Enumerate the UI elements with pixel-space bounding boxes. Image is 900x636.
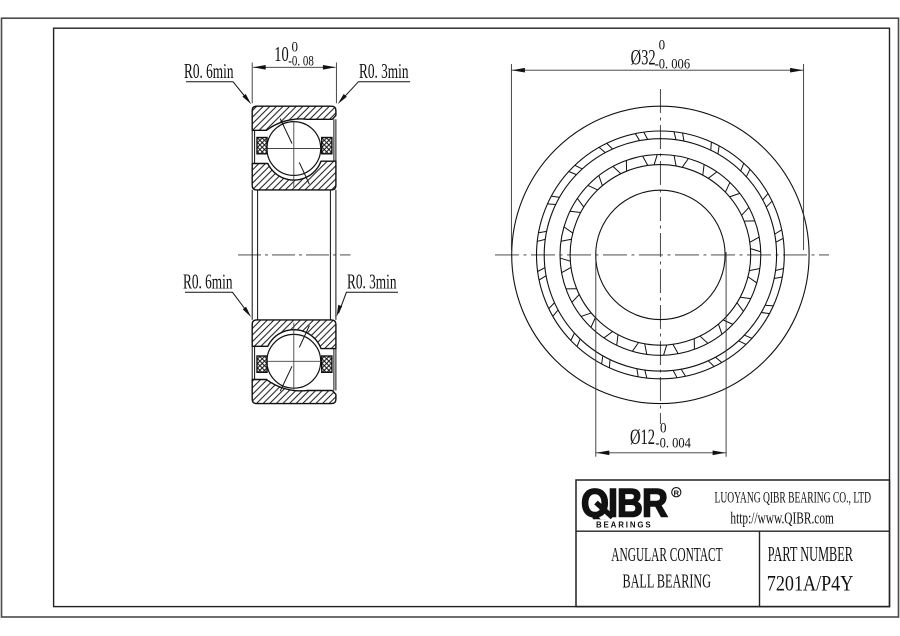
svg-text:R: R [674, 488, 680, 497]
svg-text:R0. 6min: R0. 6min [184, 59, 234, 83]
svg-text:ANGULAR CONTACT: ANGULAR CONTACT [611, 544, 722, 566]
svg-text:http://www.QIBR.com: http://www.QIBR.com [730, 508, 834, 527]
svg-text:Ø32: Ø32 [631, 44, 656, 69]
svg-text:LUOYANG QIBR BEARING CO., LTD: LUOYANG QIBR BEARING CO., LTD [715, 489, 872, 506]
svg-text:0: 0 [659, 37, 666, 53]
svg-text:Ø12: Ø12 [630, 424, 655, 449]
svg-text:BEARINGS: BEARINGS [596, 519, 653, 529]
svg-text:R0. 3min: R0. 3min [359, 59, 409, 83]
svg-text:R0. 3min: R0. 3min [347, 270, 397, 294]
svg-text:10: 10 [274, 42, 288, 66]
svg-text:-0. 006: -0. 006 [655, 56, 691, 72]
svg-text:-0. 08: -0. 08 [288, 53, 314, 69]
svg-text:7201A/P4Y: 7201A/P4Y [767, 571, 854, 596]
svg-text:PART NUMBER: PART NUMBER [768, 542, 853, 566]
svg-text:-0. 004: -0. 004 [655, 436, 691, 452]
svg-text:0: 0 [660, 421, 667, 437]
svg-text:BALL BEARING: BALL BEARING [623, 570, 712, 592]
svg-text:R0. 6min: R0. 6min [183, 270, 233, 294]
